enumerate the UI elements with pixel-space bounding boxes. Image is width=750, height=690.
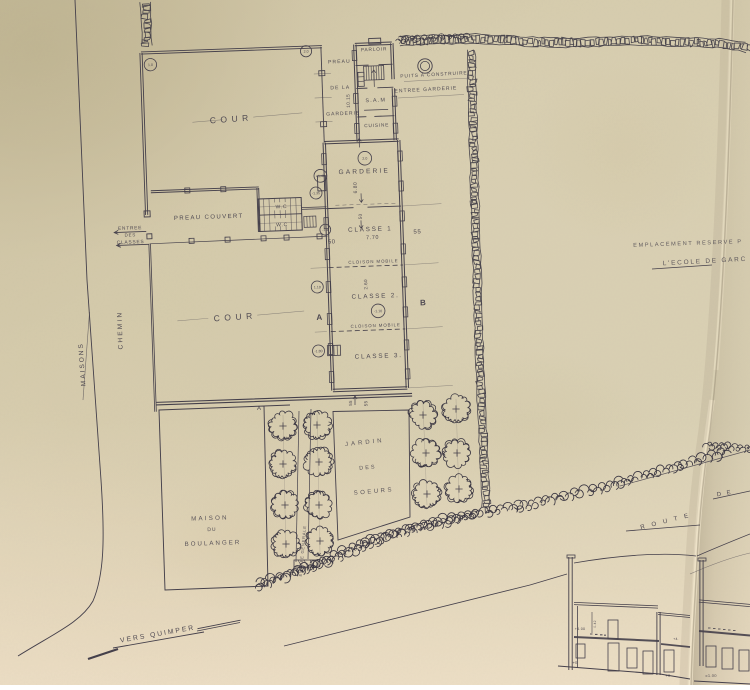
svg-text:7.70: 7.70 [366,235,379,241]
svg-text:10.15: 10.15 [346,94,352,108]
svg-text:CHEMIN: CHEMIN [116,311,124,350]
svg-text:DES: DES [125,232,137,237]
svg-text:0.42: 0.42 [593,620,597,627]
svg-text:2.0: 2.0 [362,157,367,161]
svg-text:+4.: +4. [673,637,678,641]
svg-text:PREAU: PREAU [328,59,351,66]
svg-text:1.10: 1.10 [314,285,321,289]
svg-text:PARLOIR: PARLOIR [361,46,388,53]
svg-text:S.A.M: S.A.M [365,97,386,104]
svg-text:GARDERIE: GARDERIE [326,110,360,117]
svg-text:6.80: 6.80 [353,182,359,194]
svg-text:+0: +0 [573,660,579,665]
svg-text:CUISINE: CUISINE [364,122,389,129]
svg-text:W.C: W.C [275,204,287,210]
svg-text:W.C: W.C [276,222,288,228]
svg-text:-1.4: -1.4 [322,228,328,232]
svg-text:2.0: 2.0 [303,50,308,54]
svg-text:+1.40: +1.40 [316,174,325,178]
svg-text:-1.80: -1.80 [314,349,322,353]
svg-text:55: 55 [413,228,421,235]
svg-text:50: 50 [328,238,336,245]
svg-text:DE LA: DE LA [330,85,350,92]
svg-text:A: A [257,405,261,412]
svg-text:=1.00: =1.00 [705,673,717,678]
svg-text:55: 55 [363,400,368,406]
svg-text:1.0: 1.0 [148,63,153,67]
svg-text:ENTREE: ENTREE [118,225,142,232]
svg-text:A: A [316,313,322,322]
svg-text:B: B [420,298,426,307]
svg-text:+4.00: +4.00 [575,627,586,631]
svg-text:DU: DU [207,527,216,533]
svg-text:2.60: 2.60 [363,279,368,290]
svg-text:-1.35: -1.35 [312,191,320,195]
svg-text:55: 55 [348,400,353,406]
svg-text:MAISON: MAISON [191,514,229,522]
svg-text:-1.10: -1.10 [374,309,382,313]
svg-text:50: 50 [358,213,363,219]
